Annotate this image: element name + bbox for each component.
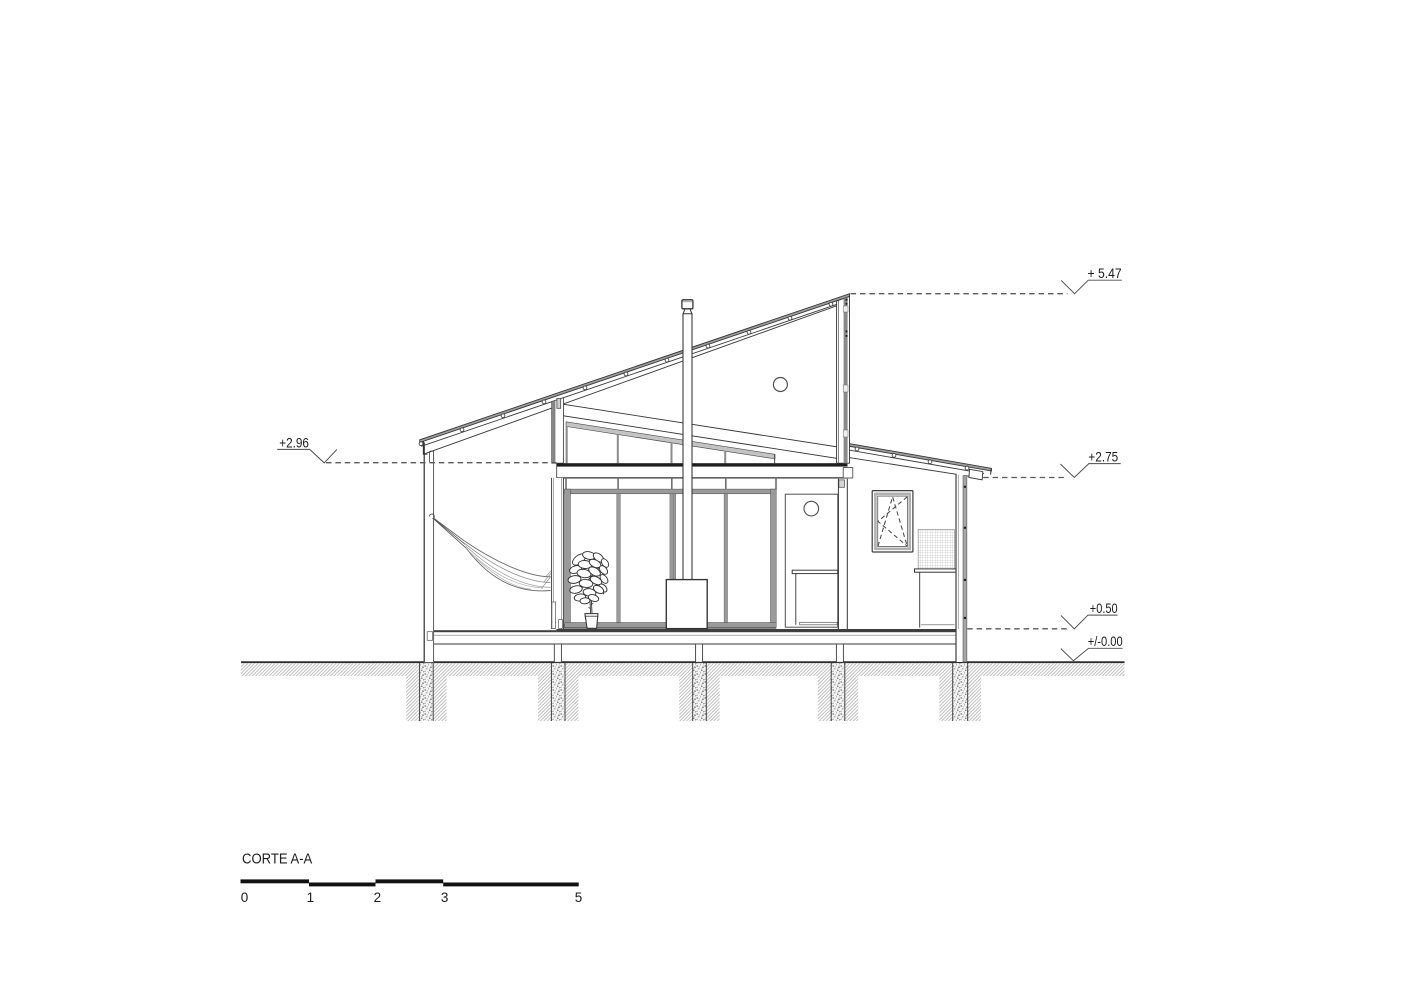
- svg-text:CORTE A-A: CORTE A-A: [242, 851, 313, 868]
- svg-text:+ 5.47: + 5.47: [1088, 266, 1122, 281]
- svg-text:+/-0.00: +/-0.00: [1088, 634, 1123, 649]
- svg-text:+2.75: +2.75: [1088, 450, 1118, 465]
- svg-text:1: 1: [307, 890, 315, 905]
- svg-text:0: 0: [241, 890, 249, 905]
- svg-text:3: 3: [441, 890, 449, 905]
- svg-text:+0.50: +0.50: [1090, 601, 1118, 616]
- svg-text:2: 2: [374, 890, 382, 905]
- svg-text:5: 5: [575, 890, 583, 905]
- svg-text:+2.96: +2.96: [279, 435, 309, 450]
